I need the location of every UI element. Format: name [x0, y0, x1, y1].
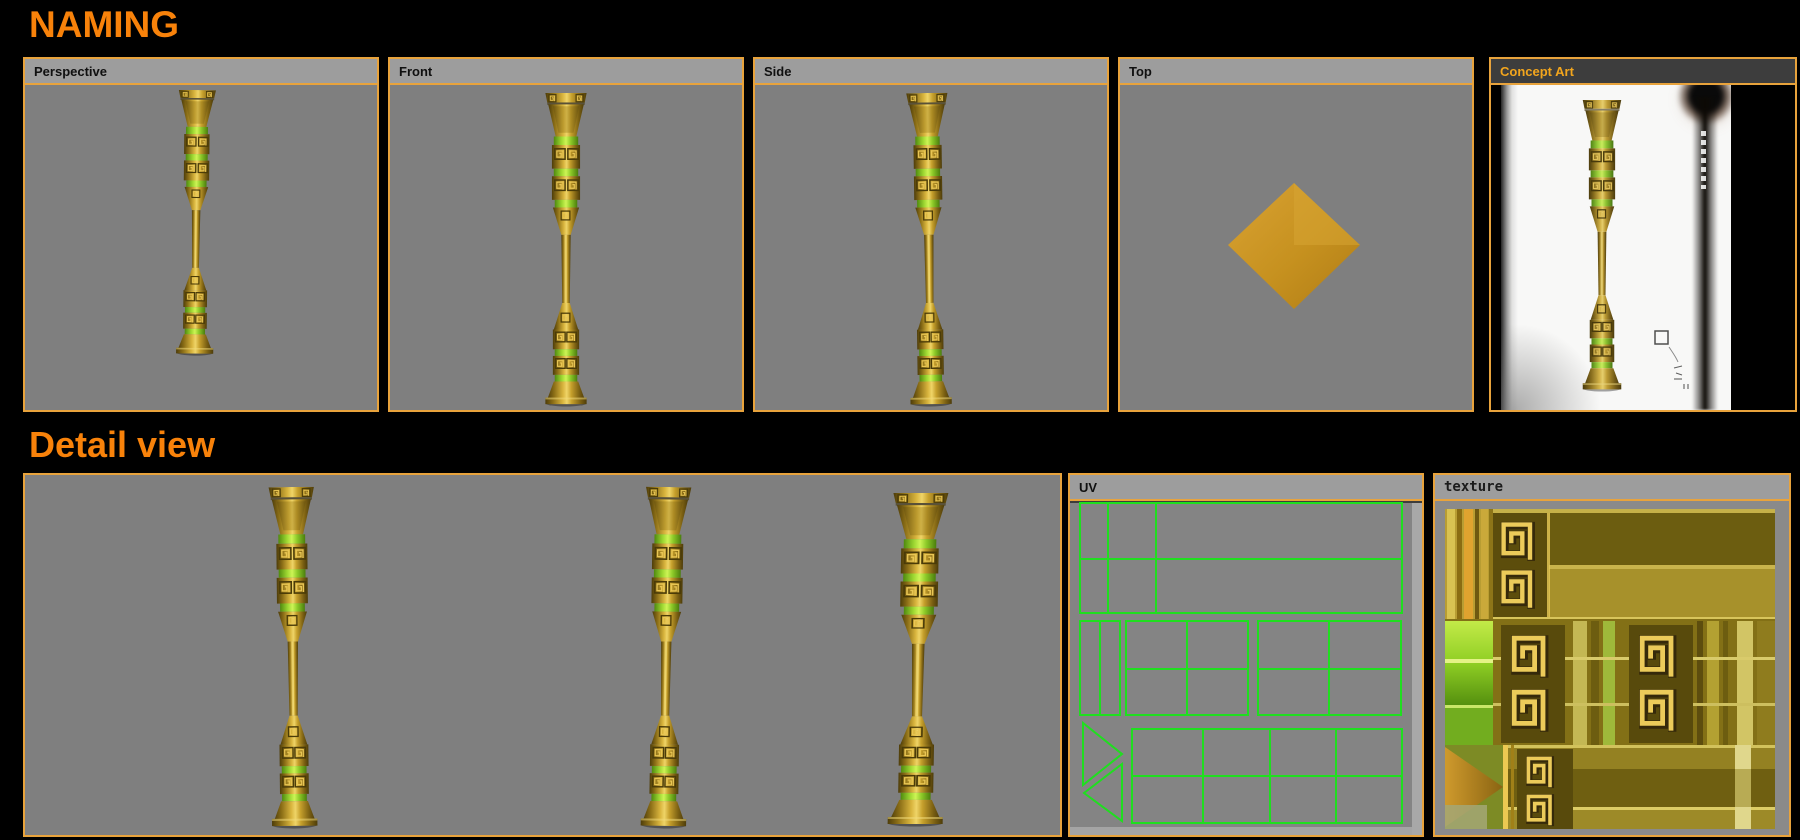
- panel-title: Side: [764, 64, 791, 79]
- panel-title: UV: [1079, 480, 1097, 495]
- panel-title: texture: [1444, 479, 1503, 495]
- section-title: Detail view: [29, 424, 215, 466]
- panel-header: Front: [390, 59, 742, 85]
- panel-header: Side: [755, 59, 1107, 85]
- annotation-scribble: [1674, 366, 1688, 389]
- viewport-canvas: [390, 85, 742, 410]
- detail-view-panel: [23, 473, 1062, 837]
- uv-panel: UV: [1068, 473, 1424, 837]
- detail-pillar-middle: [630, 487, 701, 830]
- top-view-diamond: [1120, 85, 1472, 410]
- pillar-model: [536, 93, 596, 407]
- panel-header: Concept Art: [1491, 59, 1795, 85]
- page-title: NAMING: [29, 4, 179, 46]
- panel-title: Front: [399, 64, 432, 79]
- concept-art-panel: Concept Art: [1489, 57, 1797, 412]
- pillar-model: [168, 90, 225, 357]
- viewport-canvas: [25, 85, 377, 410]
- viewport-panel-side: Side: [753, 57, 1109, 412]
- panel-title: Perspective: [34, 64, 107, 79]
- uv-canvas: [1070, 501, 1422, 835]
- annotation-overlay: [1501, 85, 1731, 410]
- viewport-panel-top: Top: [1118, 57, 1474, 412]
- annotation-square: [1655, 331, 1668, 344]
- panel-title: Top: [1129, 64, 1152, 79]
- panel-header: Top: [1120, 59, 1472, 85]
- panel-header: Perspective: [25, 59, 377, 85]
- detail-pillar-left: [258, 487, 328, 830]
- texture-map: [1445, 509, 1775, 829]
- panel-title: Concept Art: [1500, 64, 1574, 79]
- pillar-model: [897, 93, 961, 408]
- concept-canvas: [1491, 85, 1795, 410]
- annotation-leader: [1669, 347, 1678, 362]
- concept-paper: [1501, 85, 1731, 410]
- panel-header: UV: [1070, 475, 1422, 501]
- viewport-canvas: [1120, 85, 1472, 410]
- viewport-panel-front: Front: [388, 57, 744, 412]
- viewport-panel-perspective: Perspective: [23, 57, 379, 412]
- panel-header: texture: [1435, 475, 1789, 501]
- detail-pillar-right: [875, 493, 961, 827]
- viewport-canvas: [755, 85, 1107, 410]
- texture-canvas: [1435, 501, 1789, 835]
- uv-wireframe: [1070, 501, 1422, 835]
- detail-canvas: [25, 475, 1060, 835]
- texture-panel: texture: [1433, 473, 1791, 837]
